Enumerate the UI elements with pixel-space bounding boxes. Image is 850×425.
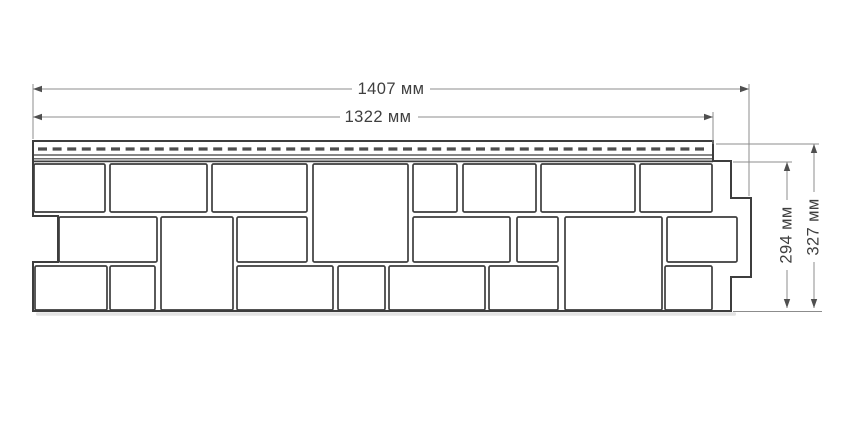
stone-block	[110, 266, 155, 310]
stone-block	[565, 217, 662, 310]
arrow-down-icon	[784, 299, 790, 308]
stone-block	[161, 217, 233, 310]
stone-block	[237, 266, 333, 310]
dimension-outer-height-label: 327 мм	[804, 198, 822, 255]
arrow-down-icon	[811, 299, 817, 308]
arrow-right-icon	[740, 86, 749, 92]
stone-block	[389, 266, 485, 310]
stone-block	[463, 164, 536, 212]
stone-blocks-group	[34, 164, 737, 310]
panel-shadow	[36, 312, 736, 315]
stone-block	[212, 164, 307, 212]
arrow-left-icon	[33, 114, 42, 120]
stone-block	[59, 217, 157, 262]
stone-block	[413, 217, 510, 262]
stone-block	[338, 266, 385, 310]
arrow-up-icon	[784, 162, 790, 171]
dimension-panel-width-label: 1322 мм	[345, 108, 412, 126]
arrow-left-icon	[33, 86, 42, 92]
arrow-right-icon	[704, 114, 713, 120]
stone-block	[517, 217, 558, 262]
stone-block	[34, 164, 105, 212]
facade-panel-diagram: 1407 мм1322 мм294 мм327 мм	[0, 0, 850, 425]
drawing-canvas: 1407 мм1322 мм294 мм327 мм	[0, 0, 850, 425]
arrow-up-icon	[811, 144, 817, 153]
stone-block	[35, 266, 107, 310]
stone-block	[667, 217, 737, 262]
stone-block	[313, 164, 408, 262]
dimension-outer-width-label: 1407 мм	[358, 80, 425, 98]
panel-shadow-group	[36, 312, 736, 315]
stone-block	[413, 164, 457, 212]
stone-block	[665, 266, 712, 310]
stone-block	[237, 217, 307, 262]
stone-block	[541, 164, 635, 212]
stone-block	[489, 266, 558, 310]
dimension-panel-height-label: 294 мм	[777, 206, 795, 263]
stone-block	[640, 164, 712, 212]
stone-block	[110, 164, 207, 212]
